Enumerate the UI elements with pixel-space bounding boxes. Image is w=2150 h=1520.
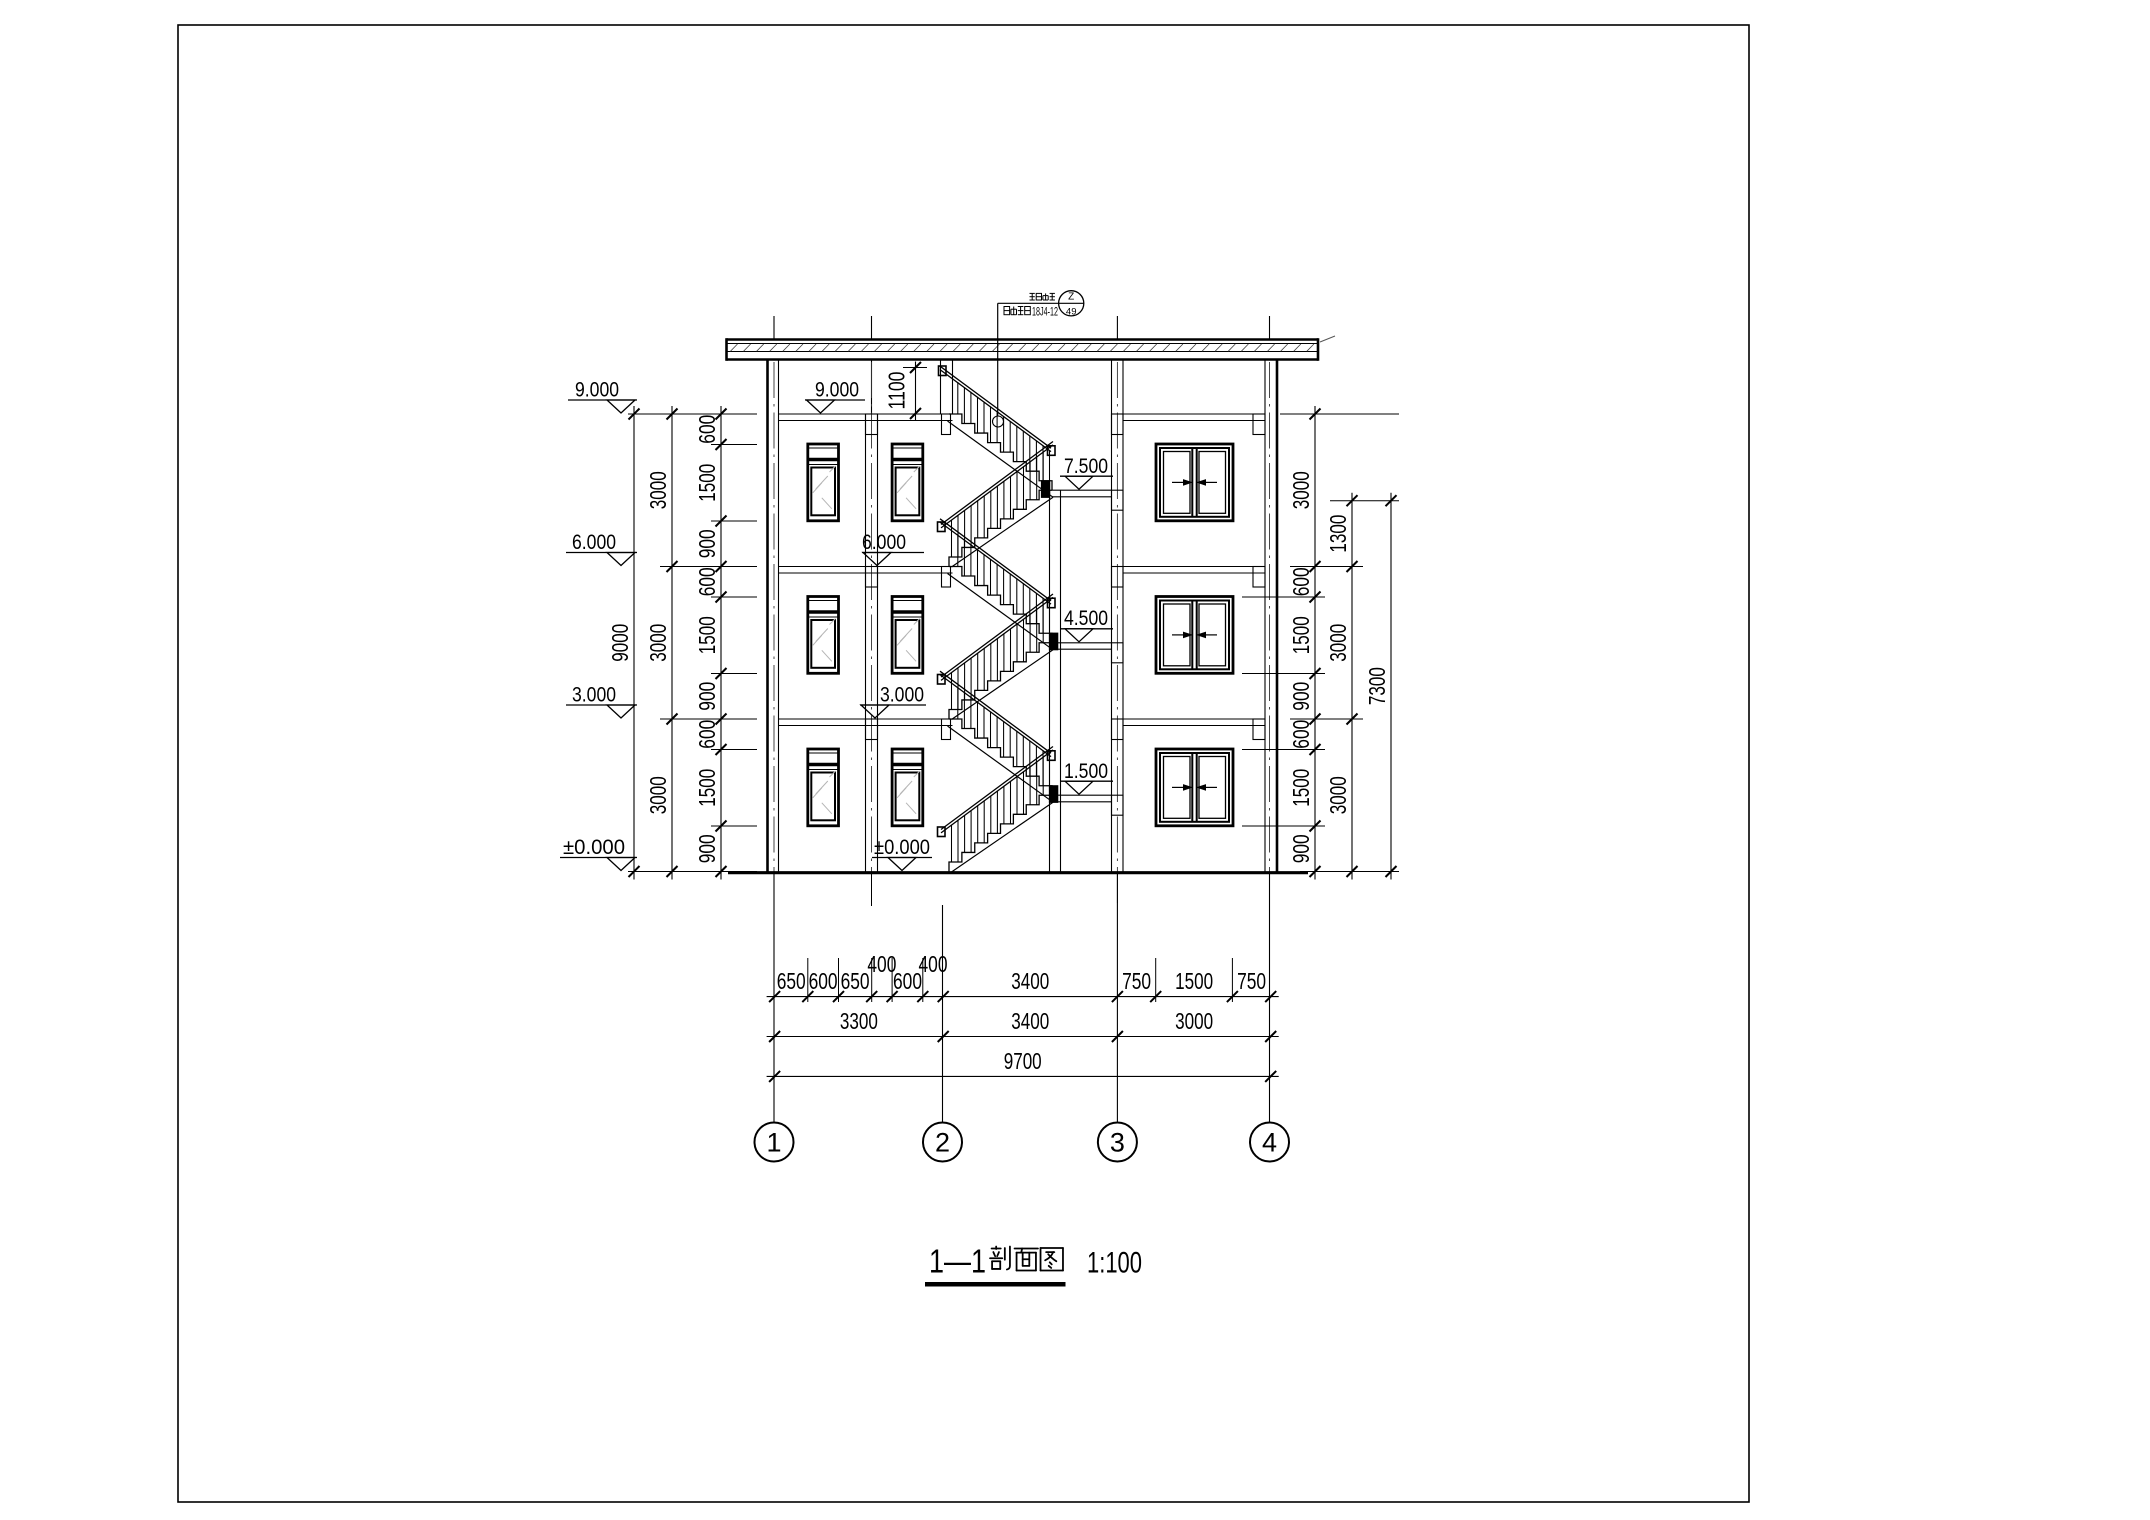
svg-text:7300: 7300 xyxy=(1364,667,1390,705)
svg-text:750: 750 xyxy=(1237,968,1266,994)
svg-text:±0.000: ±0.000 xyxy=(563,835,625,859)
svg-text:1: 1 xyxy=(766,1128,781,1158)
svg-text:3400: 3400 xyxy=(1011,968,1049,994)
svg-text:750: 750 xyxy=(1122,968,1151,994)
svg-text:600: 600 xyxy=(694,720,720,749)
svg-text:900: 900 xyxy=(1288,834,1314,863)
svg-text:1100: 1100 xyxy=(884,372,910,410)
svg-text:3300: 3300 xyxy=(840,1008,878,1034)
svg-text:600: 600 xyxy=(809,968,838,994)
svg-text:1500: 1500 xyxy=(1175,968,1213,994)
svg-text:1500: 1500 xyxy=(694,616,720,654)
svg-text:3.000: 3.000 xyxy=(572,683,616,707)
svg-text:1500: 1500 xyxy=(1288,769,1314,807)
svg-text:9.000: 9.000 xyxy=(815,378,859,402)
svg-text:9700: 9700 xyxy=(1004,1048,1042,1074)
svg-text:3: 3 xyxy=(1110,1128,1125,1158)
svg-text:1.500: 1.500 xyxy=(1064,759,1108,783)
svg-text:Z: Z xyxy=(1068,292,1074,303)
svg-text:1300: 1300 xyxy=(1325,515,1351,553)
svg-text:1:100: 1:100 xyxy=(1087,1247,1142,1280)
svg-text:±0.000: ±0.000 xyxy=(874,835,930,859)
svg-text:900: 900 xyxy=(694,682,720,711)
svg-text:3400: 3400 xyxy=(1011,1008,1049,1034)
svg-text:900: 900 xyxy=(694,834,720,863)
svg-text:2: 2 xyxy=(935,1128,950,1158)
svg-text:1500: 1500 xyxy=(694,464,720,502)
svg-text:3000: 3000 xyxy=(1325,776,1351,814)
svg-text:3000: 3000 xyxy=(1288,471,1314,509)
svg-text:7.500: 7.500 xyxy=(1064,454,1108,478)
svg-text:3000: 3000 xyxy=(645,471,671,509)
svg-text:49: 49 xyxy=(1066,307,1077,318)
svg-text:3000: 3000 xyxy=(1175,1008,1213,1034)
svg-text:4: 4 xyxy=(1262,1128,1277,1158)
svg-text:600: 600 xyxy=(1288,720,1314,749)
svg-text:3.000: 3.000 xyxy=(880,683,924,707)
svg-text:9.000: 9.000 xyxy=(575,378,619,402)
svg-text:6.000: 6.000 xyxy=(862,530,906,554)
svg-text:650: 650 xyxy=(841,968,870,994)
svg-text:3000: 3000 xyxy=(1325,624,1351,662)
svg-text:6.000: 6.000 xyxy=(572,530,616,554)
svg-text:3000: 3000 xyxy=(645,776,671,814)
svg-text:18J4-12: 18J4-12 xyxy=(1032,307,1058,319)
svg-text:400: 400 xyxy=(919,951,948,977)
svg-text:600: 600 xyxy=(694,567,720,596)
svg-text:4.500: 4.500 xyxy=(1064,606,1108,630)
svg-text:9000: 9000 xyxy=(607,624,633,662)
svg-text:900: 900 xyxy=(694,529,720,558)
svg-text:1—1: 1—1 xyxy=(929,1243,986,1280)
svg-text:600: 600 xyxy=(694,415,720,444)
svg-text:1500: 1500 xyxy=(1288,616,1314,654)
svg-text:600: 600 xyxy=(1288,567,1314,596)
svg-text:900: 900 xyxy=(1288,682,1314,711)
svg-text:650: 650 xyxy=(777,968,806,994)
svg-text:1500: 1500 xyxy=(694,769,720,807)
svg-text:3000: 3000 xyxy=(645,624,671,662)
